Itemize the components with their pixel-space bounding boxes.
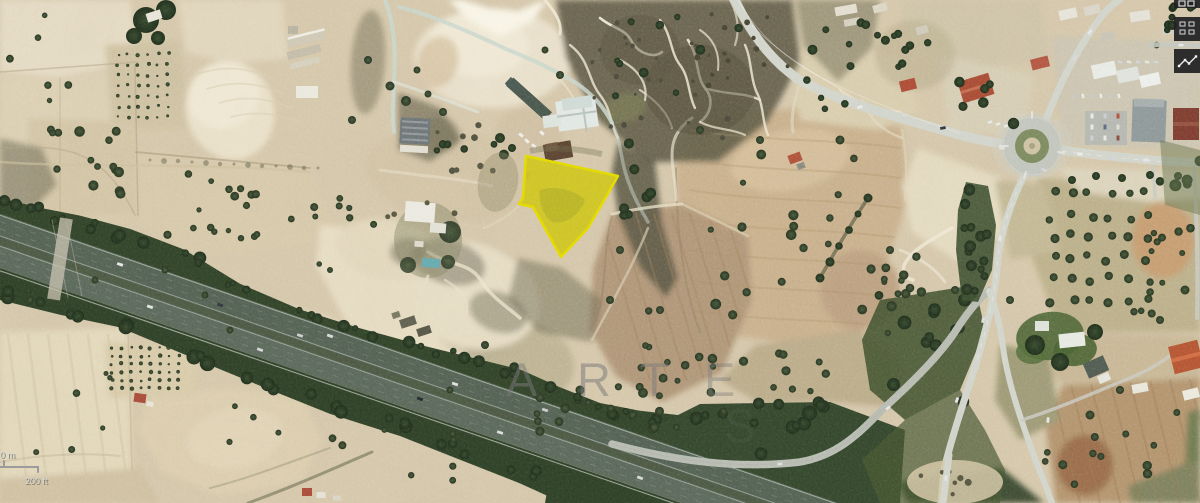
svg-text:0 m: 0 m [0, 450, 15, 460]
svg-text:200 ft: 200 ft [25, 476, 48, 486]
